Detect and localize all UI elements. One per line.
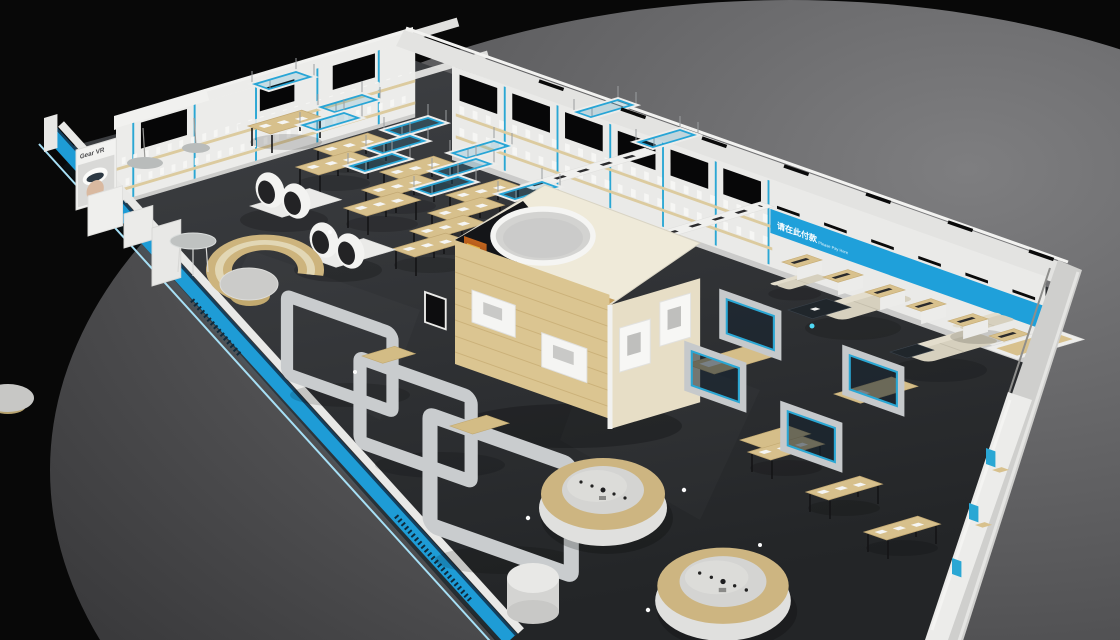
demo-device-glow [810,324,815,329]
shelf-blue-accent [969,503,978,522]
floor-stool [507,563,559,624]
render-canvas: 请在此付款 Please Pay Here Gear VR [0,0,1120,640]
shelf-blue-accent [986,448,995,467]
skylight-ring [493,209,593,263]
tv-display-stand [425,292,446,329]
wall-end-cap [44,114,57,152]
store-render-scene: 请在此付款 Please Pay Here Gear VR [0,0,1120,640]
shelf-blue-accent [952,558,961,577]
